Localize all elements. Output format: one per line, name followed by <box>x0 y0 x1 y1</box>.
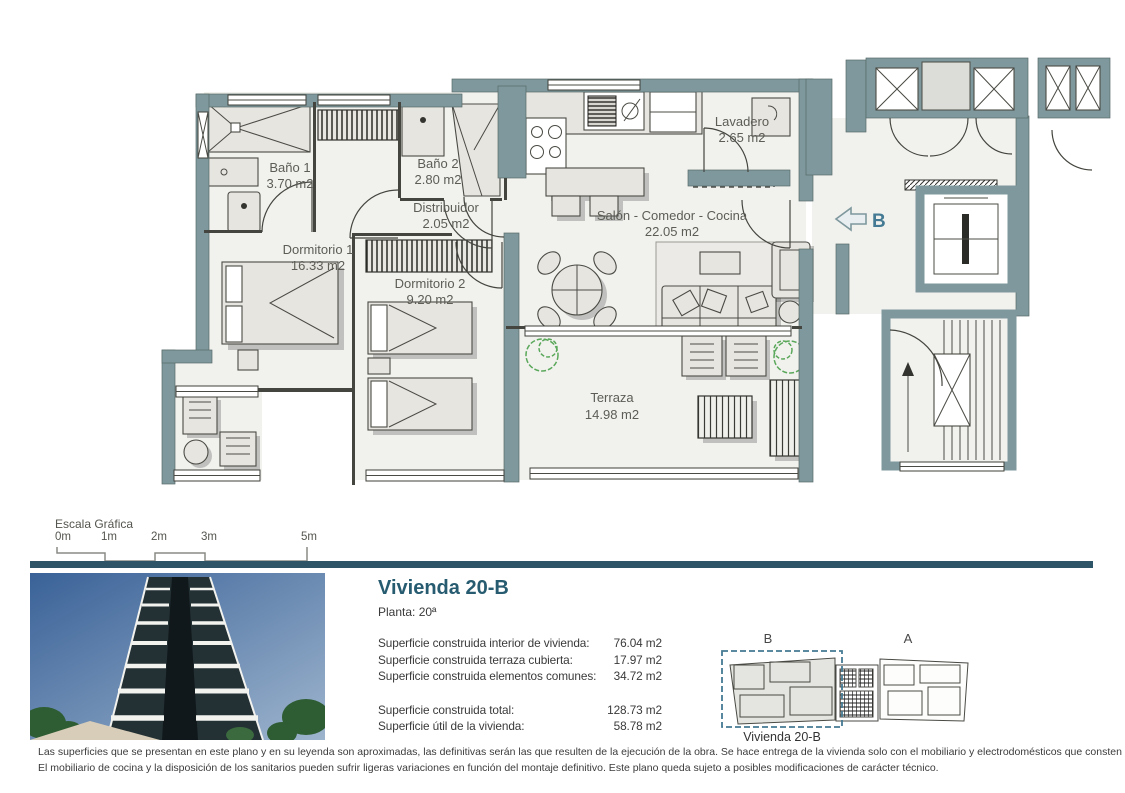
surface-row: Superficie construida terraza cubierta: … <box>378 652 662 669</box>
scale-tick-2: 2m <box>151 531 167 543</box>
surface-label: Superficie útil de la vivienda: <box>378 718 524 735</box>
label-bano1-name: Baño 1 <box>269 160 310 175</box>
surface-row: Superficie útil de la vivienda: 58.78 m2 <box>378 718 662 735</box>
label-terraza-area: 14.98 m2 <box>585 407 639 422</box>
unit-marker-letter: B <box>872 211 886 232</box>
surface-label: Superficie construida elementos comunes: <box>378 668 596 685</box>
key-plan: B A Vivienda 20-B <box>700 625 980 743</box>
surface-totals: Superficie construida total: 128.73 m2 S… <box>378 702 662 735</box>
keyplan-caption: Vivienda 20-B <box>743 730 821 743</box>
label-dorm1-area: 16.33 m2 <box>291 258 345 273</box>
scale-tick-3: 3m <box>201 531 217 543</box>
label-bano2-name: Baño 2 <box>417 156 458 171</box>
disclaimer-line2: El mobiliario de cocina y la disposición… <box>38 761 1108 777</box>
surface-value: 58.78 m2 <box>614 718 662 735</box>
surface-value: 17.97 m2 <box>614 652 662 669</box>
keyplan-letter-a: A <box>904 631 913 646</box>
label-bano1-area: 3.70 m2 <box>267 176 314 191</box>
label-dorm1-name: Dormitorio 1 <box>283 242 354 257</box>
plan-sheet: B Baño 1 3.70 m2 Baño 2 2.80 m2 Distribu… <box>0 0 1125 793</box>
surface-value: 76.04 m2 <box>614 635 662 652</box>
floor-plan: B Baño 1 3.70 m2 Baño 2 2.80 m2 Distribu… <box>0 0 1125 515</box>
surface-label: Superficie construida interior de vivien… <box>378 635 589 652</box>
surface-row: Superficie construida total: 128.73 m2 <box>378 702 662 719</box>
label-distribuidor-area: 2.05 m2 <box>423 216 470 231</box>
keyplan-letter-b: B <box>764 631 773 646</box>
surface-value: 128.73 m2 <box>607 702 662 719</box>
keyplan-unit-a <box>880 659 968 721</box>
surface-value: 34.72 m2 <box>614 668 662 685</box>
unit-floor: Planta: 20ª <box>378 605 662 619</box>
label-salon-area: 22.05 m2 <box>645 224 699 239</box>
label-terraza-name: Terraza <box>590 390 634 405</box>
scale-bar: Escala Gráfica 0m 1m 2m 3m 5m <box>55 517 325 565</box>
label-dorm2-area: 9.20 m2 <box>407 292 454 307</box>
label-lavadero-area: 2.65 m2 <box>719 130 766 145</box>
label-distribuidor-name: Distribuidor <box>413 200 479 215</box>
surface-row: Superficie construida elementos comunes:… <box>378 668 662 685</box>
dormitorio2-furniture <box>366 240 492 435</box>
disclaimer: Las superficies que se presentan en este… <box>38 745 1108 776</box>
section-divider <box>30 561 1093 568</box>
disclaimer-line1: Las superficies que se presentan en este… <box>38 745 1108 761</box>
surface-label: Superficie construida terraza cubierta: <box>378 652 573 669</box>
surface-row: Superficie construida interior de vivien… <box>378 635 662 652</box>
scale-title: Escala Gráfica <box>55 517 325 531</box>
scale-ticks: 0m 1m 2m 3m 5m <box>55 531 325 545</box>
surface-label: Superficie construida total: <box>378 702 514 719</box>
scale-tick-1: 1m <box>101 531 117 543</box>
label-lavadero-name: Lavadero <box>715 114 769 129</box>
unit-title: Vivienda 20-B <box>378 577 662 600</box>
surface-rows: Superficie construida interior de vivien… <box>378 635 662 685</box>
label-dorm2-name: Dormitorio 2 <box>395 276 466 291</box>
building-photo <box>30 573 325 740</box>
living-furniture <box>656 242 814 335</box>
scale-tick-4: 5m <box>301 531 317 543</box>
label-bano2-area: 2.80 m2 <box>415 172 462 187</box>
unit-info: Vivienda 20-B Planta: 20ª Superficie con… <box>378 577 662 735</box>
wardrobe-dormitorio1 <box>318 110 400 140</box>
label-salon-name: Salón - Comedor - Cocina <box>597 208 748 223</box>
scale-tick-0: 0m <box>55 531 71 543</box>
keyplan-unit-b <box>730 658 835 724</box>
